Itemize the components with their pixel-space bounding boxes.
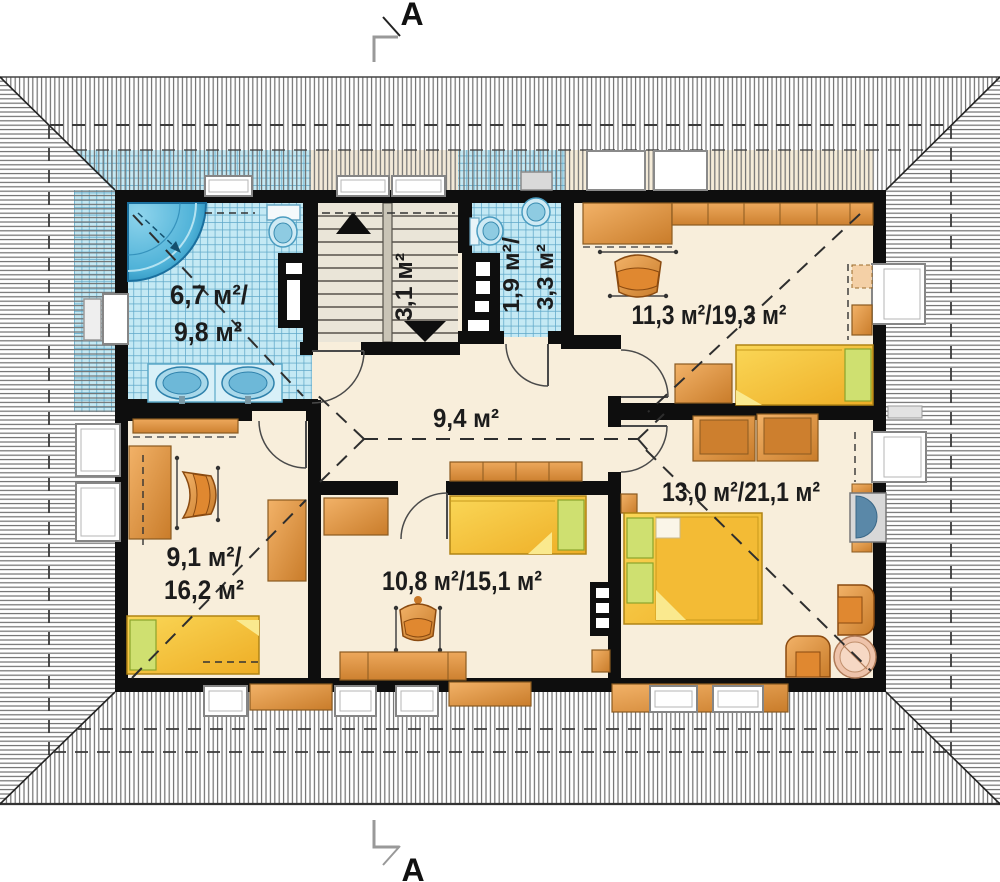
- svg-text:9,8 м²: 9,8 м²: [174, 317, 242, 347]
- svg-text:A: A: [400, 0, 423, 32]
- svg-text:10,8 м²/15,1 м²: 10,8 м²/15,1 м²: [382, 566, 542, 596]
- svg-text:9,4 м²: 9,4 м²: [433, 403, 499, 433]
- svg-text:3,1 м²: 3,1 м²: [391, 253, 418, 321]
- svg-text:9,1 м²/: 9,1 м²/: [167, 542, 242, 572]
- svg-text:13,0 м²/21,1 м²: 13,0 м²/21,1 м²: [662, 477, 820, 507]
- svg-text:16,2 м²: 16,2 м²: [164, 575, 244, 605]
- svg-text:11,3 м²/19,3 м²: 11,3 м²/19,3 м²: [632, 300, 787, 330]
- svg-text:6,7 м²/: 6,7 м²/: [170, 280, 248, 310]
- svg-text:3,3 м²: 3,3 м²: [532, 244, 558, 310]
- svg-text:A: A: [401, 852, 424, 882]
- svg-text:1,9 м²/: 1,9 м²/: [498, 236, 524, 313]
